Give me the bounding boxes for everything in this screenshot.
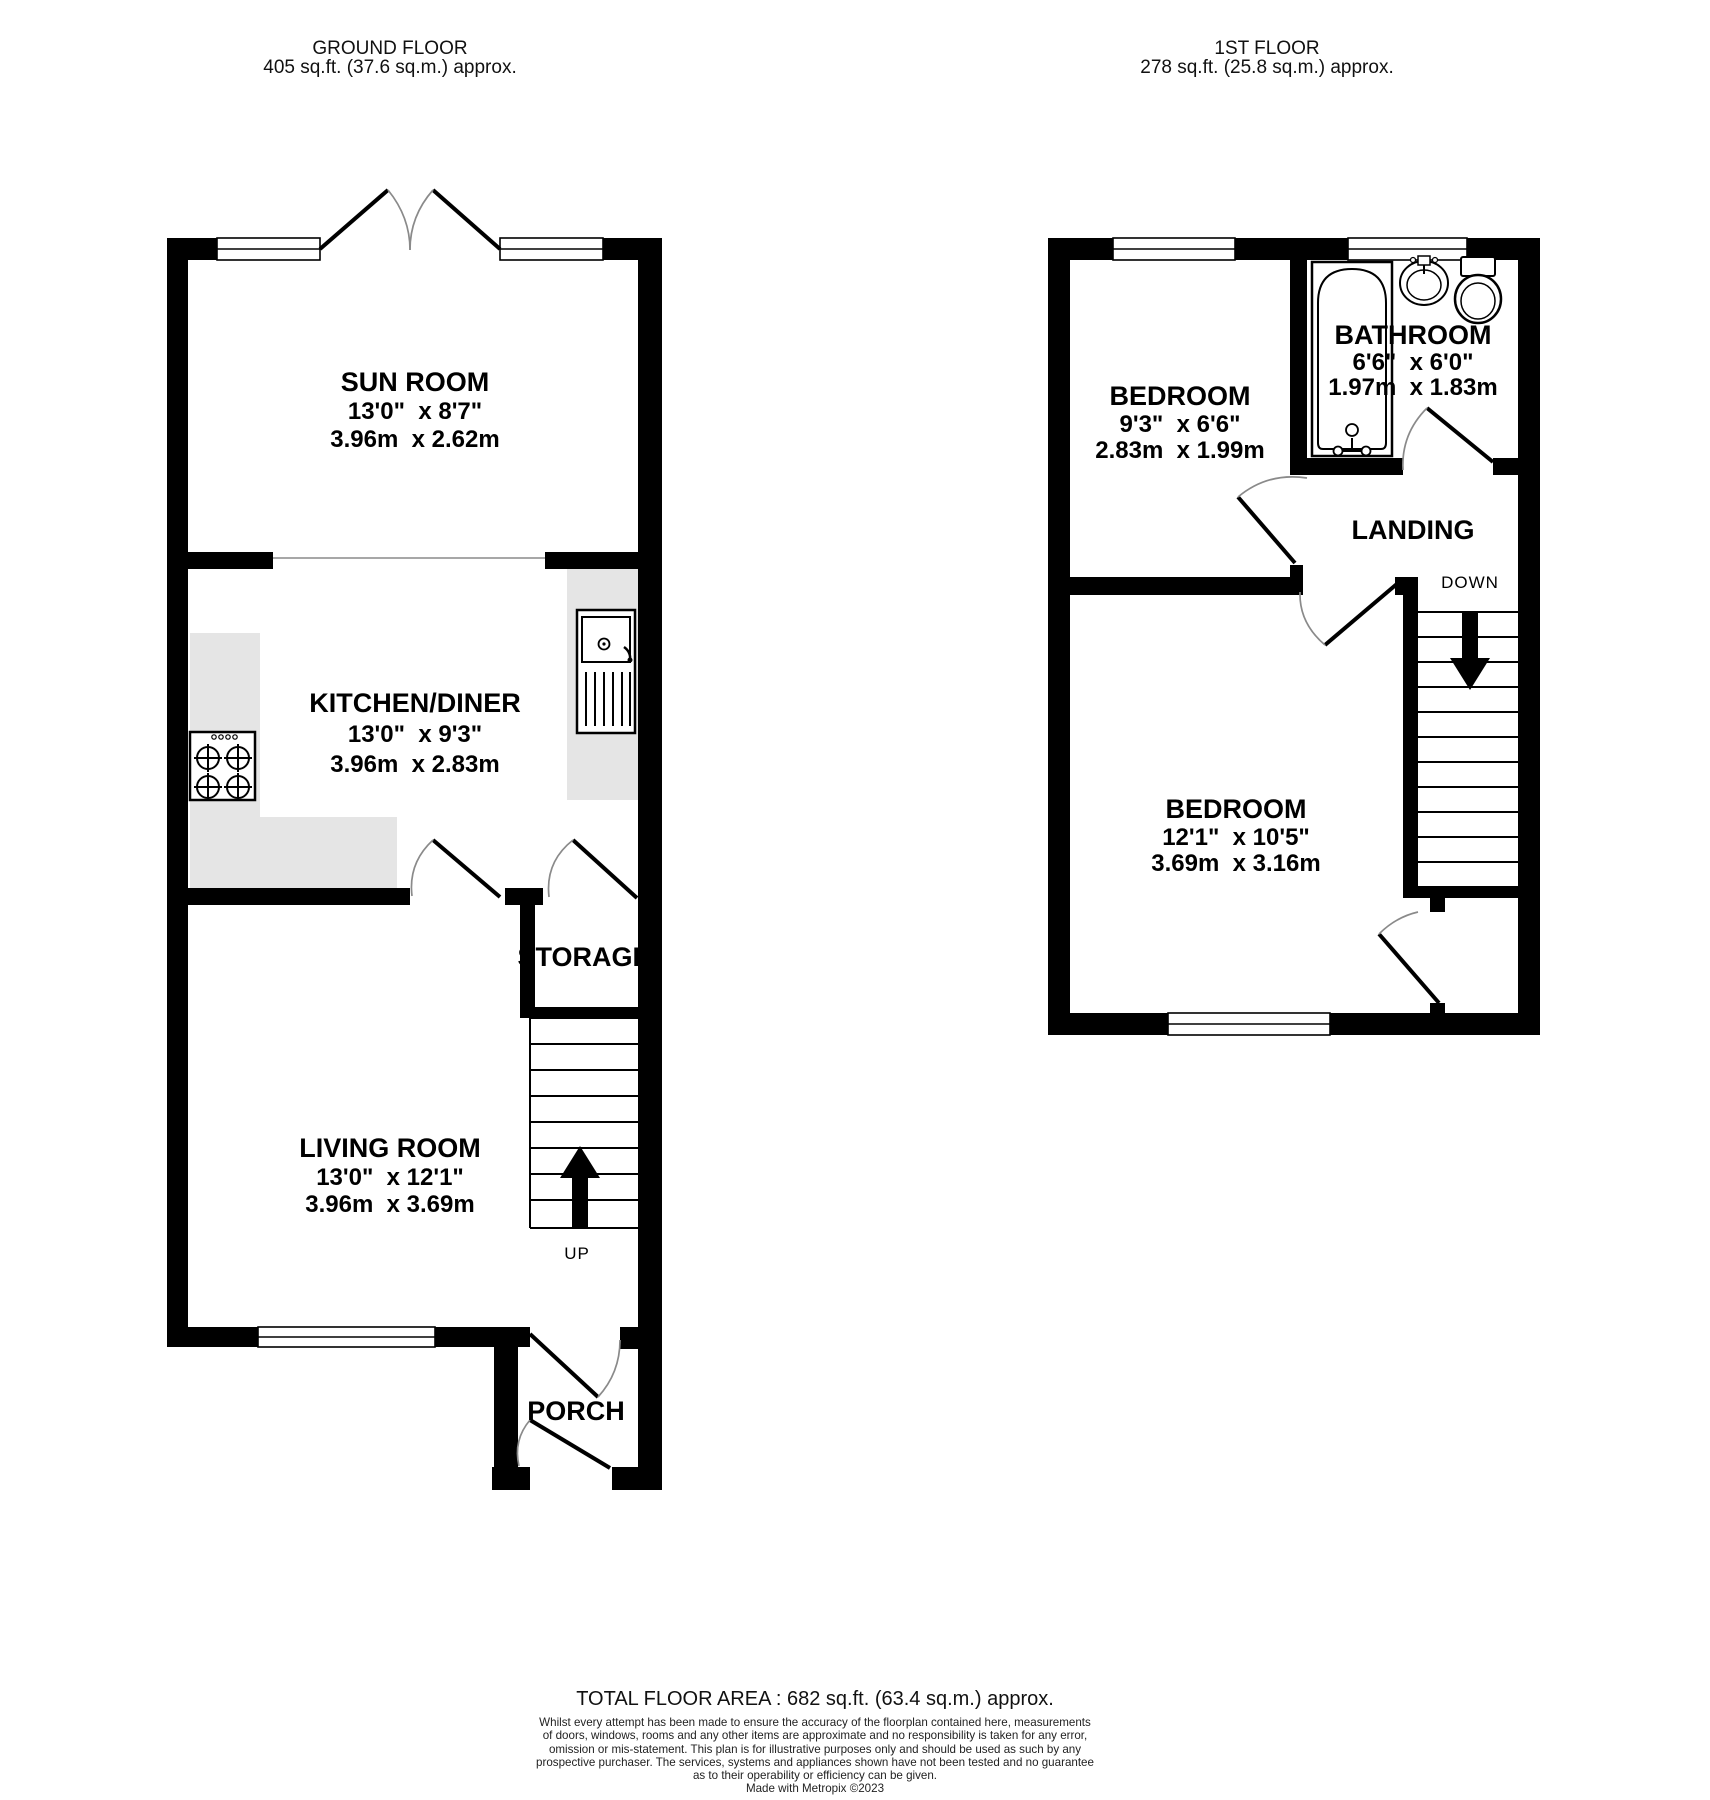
down-label: DOWN <box>1441 573 1499 592</box>
disclaimer-line: as to their operability or efficiency ca… <box>315 1769 1315 1782</box>
room-label: BATHROOM <box>1335 320 1492 350</box>
room-bathroom: BATHROOM 6'6" x 6'0" 1.97m x 1.83m <box>1328 320 1497 401</box>
room-label: LIVING ROOM <box>299 1133 481 1163</box>
room-porch-label: PORCH <box>527 1396 625 1426</box>
room-dim-imperial: 6'6" x 6'0" <box>1353 349 1474 376</box>
room-dim-metric: 3.96m x 2.62m <box>330 426 499 453</box>
room-dim-metric: 3.69m x 3.16m <box>1151 850 1320 877</box>
front-door <box>517 1420 610 1468</box>
floorplan-page: GROUND FLOOR 405 sq.ft. (37.6 sq.m.) app… <box>0 0 1710 1800</box>
disclaimer-line: prospective purchaser. The services, sys… <box>315 1756 1315 1769</box>
sunroom-window-right <box>500 238 603 260</box>
bedroom2-window <box>1168 1013 1330 1035</box>
bathroom-door <box>1403 408 1493 470</box>
room-label: KITCHEN/DINER <box>309 688 521 718</box>
room-landing-label: LANDING <box>1352 515 1475 545</box>
staircase-up <box>530 1018 638 1228</box>
first-floor-plan: BEDROOM 9'3" x 6'6" 2.83m x 1.99m BATHRO… <box>1048 238 1540 1035</box>
room-bedroom-1: BEDROOM 9'3" x 6'6" 2.83m x 1.99m <box>1095 381 1264 464</box>
toilet-icon <box>1455 257 1501 323</box>
living-room-window <box>258 1327 435 1347</box>
bedroom1-door <box>1238 477 1307 563</box>
room-living-room: LIVING ROOM 13'0" x 12'1" 3.96m x 3.69m <box>299 1133 481 1218</box>
hob-icon <box>190 732 255 801</box>
room-label: SUN ROOM <box>341 367 490 397</box>
room-dim-metric: 1.97m x 1.83m <box>1328 374 1497 401</box>
room-dim-imperial: 13'0" x 8'7" <box>348 398 482 425</box>
french-doors <box>320 190 500 250</box>
bedroom2-door <box>1300 583 1398 645</box>
room-storage-label: STORAGE <box>517 942 650 972</box>
sunroom-window-left <box>217 238 320 260</box>
up-arrow-icon <box>560 1146 600 1228</box>
room-dim-metric: 2.83m x 1.99m <box>1095 437 1264 464</box>
room-dim-metric: 3.96m x 2.83m <box>330 751 499 778</box>
kitchen-door <box>411 840 500 897</box>
room-bedroom-2: BEDROOM 12'1" x 10'5" 3.69m x 3.16m <box>1151 794 1320 877</box>
ground-floor-plan: SUN ROOM 13'0" x 8'7" 3.96m x 2.62m KITC… <box>167 190 662 1490</box>
basin-icon <box>1400 256 1448 305</box>
disclaimer-line: Whilst every attempt has been made to en… <box>315 1716 1315 1729</box>
room-dim-imperial: 13'0" x 12'1" <box>316 1164 464 1191</box>
room-label: BEDROOM <box>1110 381 1251 411</box>
room-sun-room: SUN ROOM 13'0" x 8'7" 3.96m x 2.62m <box>330 367 499 453</box>
porch-inner-door <box>530 1334 620 1397</box>
floorplan-drawing: SUN ROOM 13'0" x 8'7" 3.96m x 2.62m KITC… <box>0 0 1710 1800</box>
room-kitchen-diner: KITCHEN/DINER 13'0" x 9'3" 3.96m x 2.83m <box>309 688 521 778</box>
room-dim-imperial: 12'1" x 10'5" <box>1162 824 1310 851</box>
total-floor-area: TOTAL FLOOR AREA : 682 sq.ft. (63.4 sq.m… <box>415 1688 1215 1711</box>
storage-door <box>549 840 638 898</box>
disclaimer: Whilst every attempt has been made to en… <box>315 1716 1315 1796</box>
bedroom1-window <box>1113 238 1235 260</box>
credit-line: Made with Metropix ©2023 <box>315 1782 1315 1795</box>
disclaimer-line: of doors, windows, rooms and any other i… <box>315 1729 1315 1742</box>
room-label: BEDROOM <box>1166 794 1307 824</box>
room-dim-metric: 3.96m x 3.69m <box>305 1191 474 1218</box>
bedroom2-stair-door <box>1379 912 1439 1003</box>
up-label: UP <box>564 1244 590 1263</box>
staircase-down <box>1418 612 1518 887</box>
disclaimer-line: omission or mis-statement. This plan is … <box>315 1743 1315 1756</box>
bathroom-window <box>1348 238 1467 260</box>
room-dim-imperial: 9'3" x 6'6" <box>1120 411 1241 438</box>
down-arrow-icon <box>1450 612 1490 690</box>
room-dim-imperial: 13'0" x 9'3" <box>348 721 482 748</box>
kitchen-sink-icon <box>577 610 635 733</box>
